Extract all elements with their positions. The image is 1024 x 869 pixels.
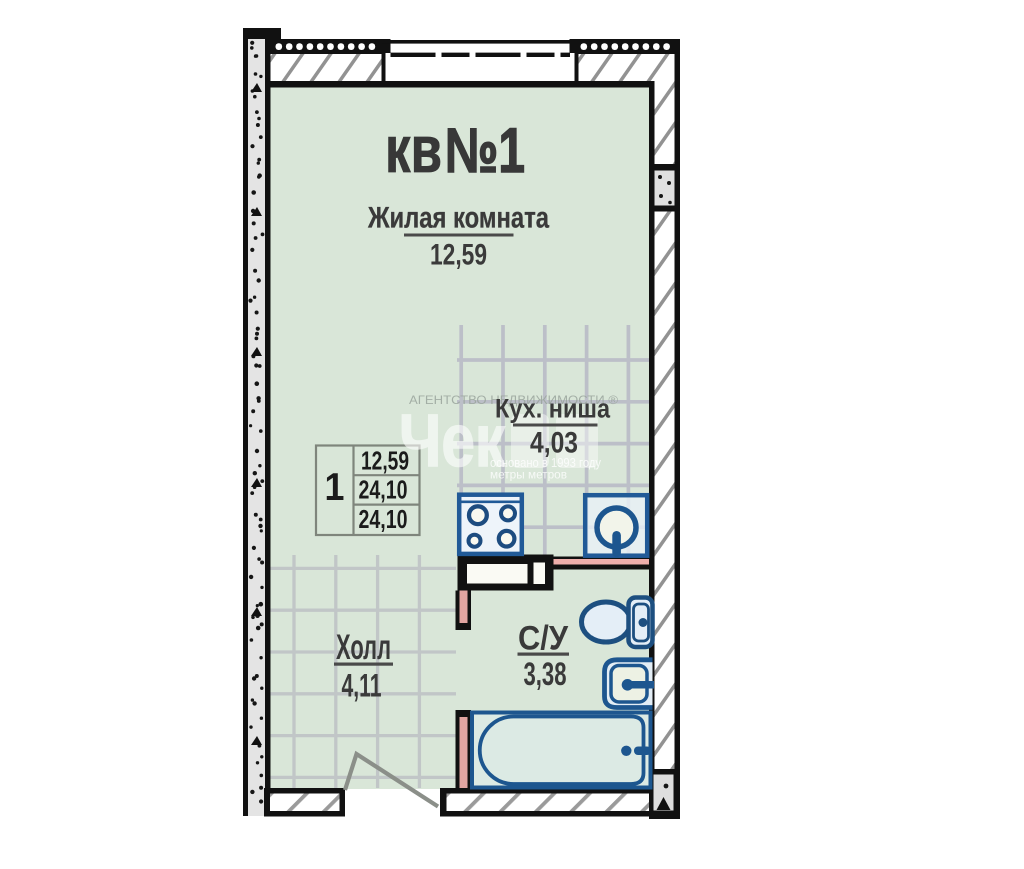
svg-text:1: 1	[325, 465, 345, 509]
svg-text:метры метров: метры метров	[490, 468, 567, 482]
svg-text:4,11: 4,11	[342, 667, 382, 703]
svg-text:4,03: 4,03	[530, 427, 578, 460]
svg-text:№1: №1	[445, 116, 525, 186]
svg-text:С/У: С/У	[518, 620, 569, 658]
svg-text:3,38: 3,38	[524, 656, 567, 692]
svg-text:24,10: 24,10	[359, 504, 408, 534]
svg-text:Кух. ниша: Кух. ниша	[495, 394, 610, 424]
svg-text:12,59: 12,59	[430, 239, 487, 272]
svg-text:Холл: Холл	[336, 627, 391, 667]
svg-text:кв: кв	[385, 112, 442, 186]
svg-text:Жилая комната: Жилая комната	[367, 202, 549, 235]
